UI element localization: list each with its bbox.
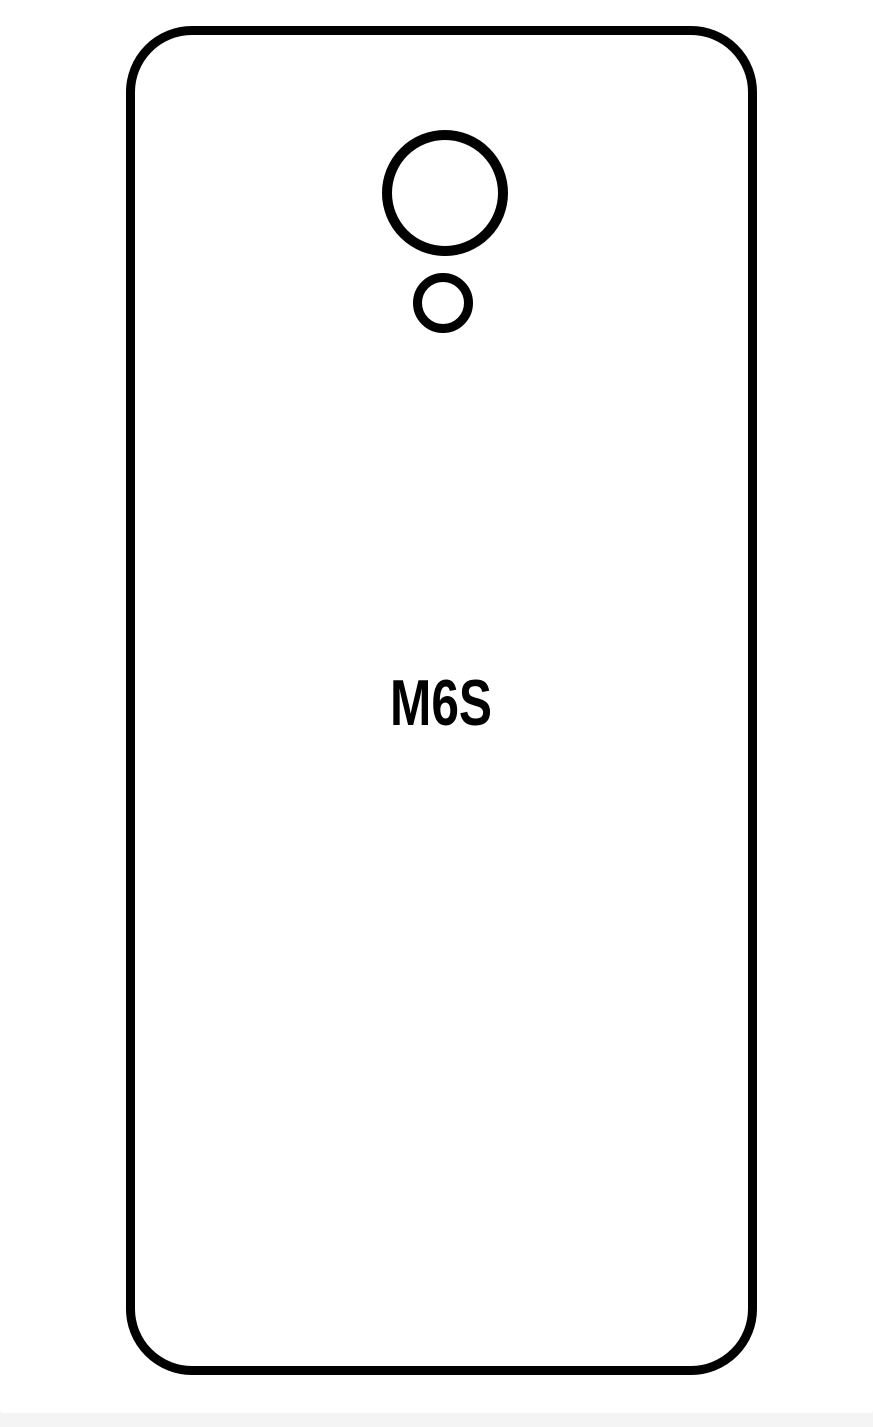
page-background-strip	[0, 1413, 873, 1420]
flash-cutout-icon	[413, 273, 473, 333]
model-label: M6S	[390, 666, 492, 739]
product-image-canvas: M6S	[0, 0, 873, 1420]
model-label-container: M6S	[311, 650, 571, 740]
camera-cutout-icon	[382, 130, 508, 256]
